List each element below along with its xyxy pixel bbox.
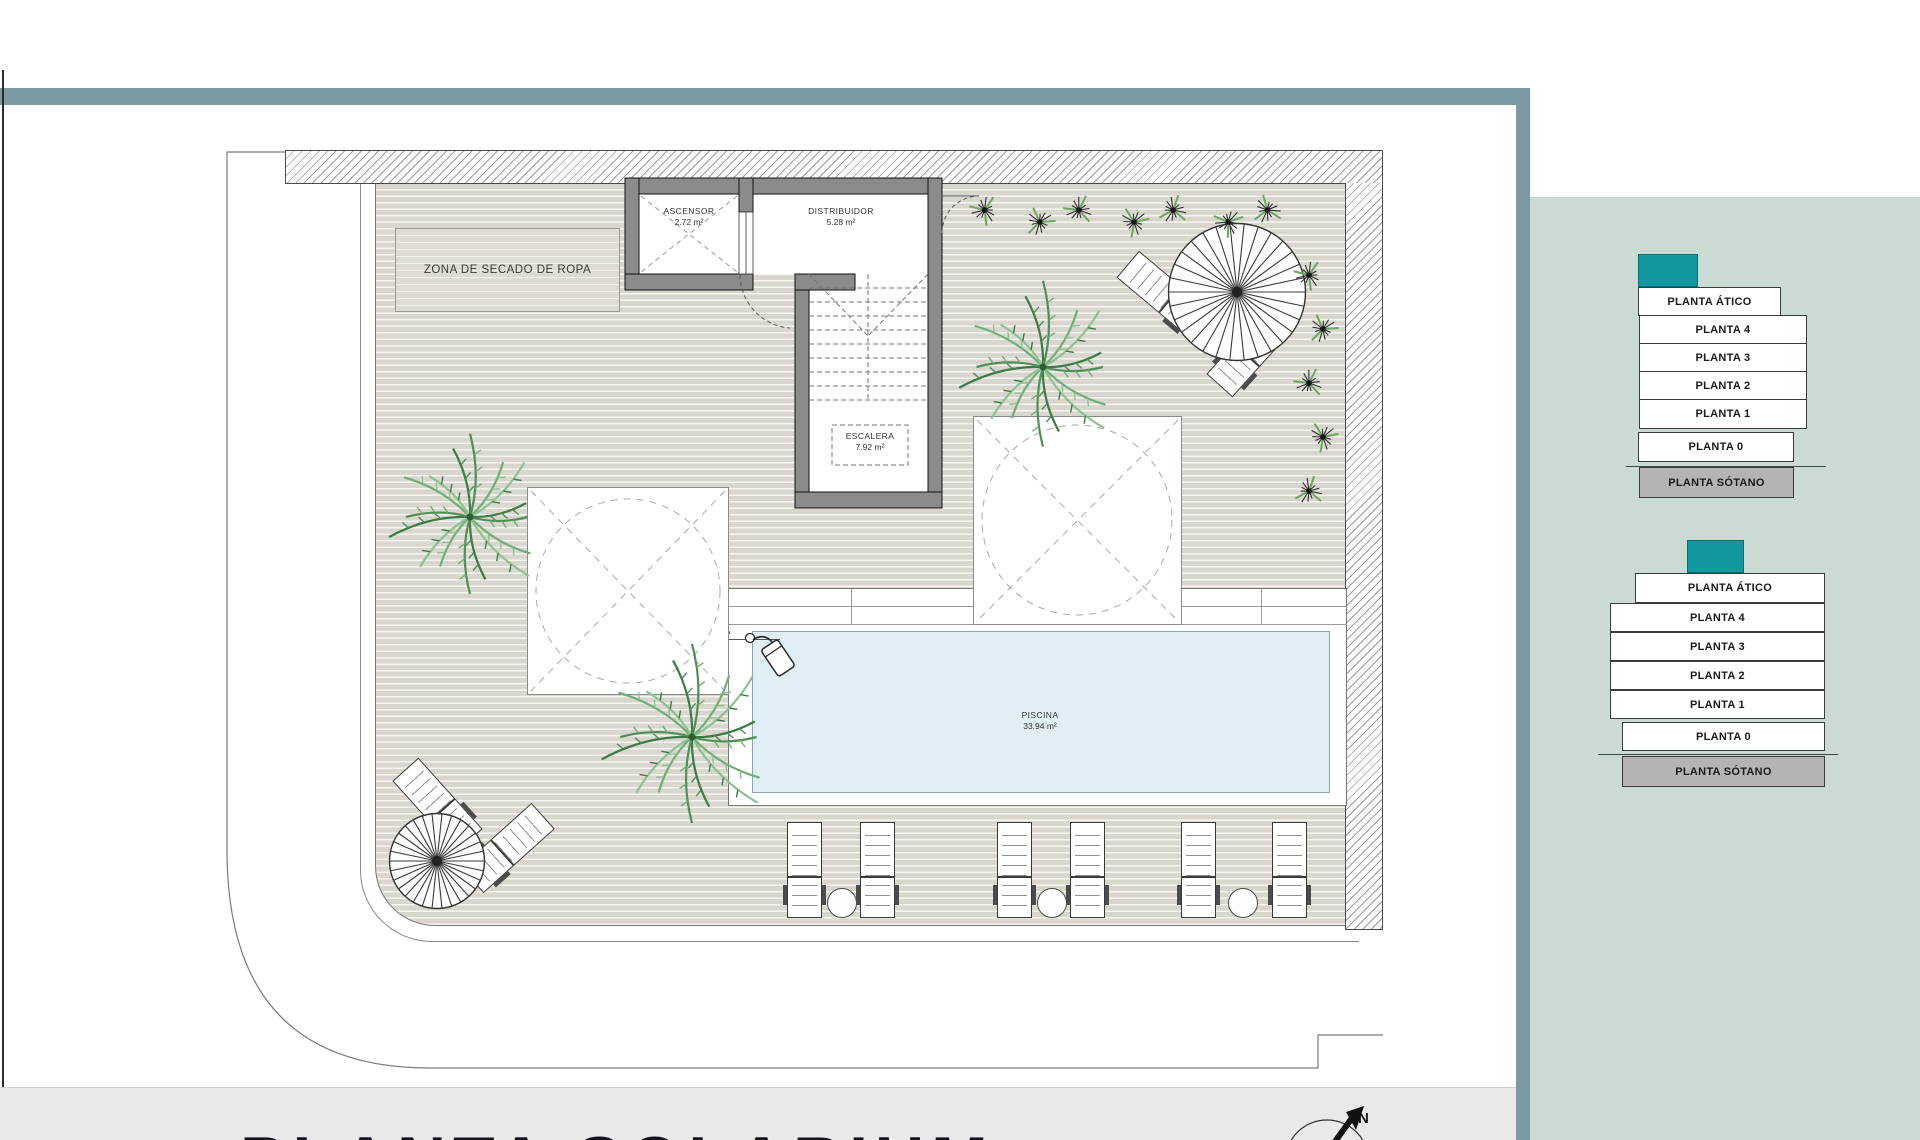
parasol-bottom-left (388, 812, 486, 910)
floor-row-planta0[interactable]: PLANTA 0 (1622, 722, 1825, 751)
shrub-row-right (1288, 248, 1344, 518)
ascensor-label: ASCENSOR 2.72 m² (631, 206, 747, 228)
palm-tree (385, 432, 555, 602)
palm-tree (955, 279, 1131, 455)
floor-row-planta2[interactable]: PLANTA 2 (1610, 661, 1825, 690)
floor-row-planta2[interactable]: PLANTA 2 (1639, 371, 1807, 400)
sun-lounger (997, 822, 1032, 918)
floor-row-planta4[interactable]: PLANTA 4 (1610, 603, 1825, 632)
shrub-row-top (965, 188, 1295, 244)
floor-row-sotano[interactable]: PLANTA SÓTANO (1622, 756, 1825, 787)
sun-lounger (1181, 822, 1216, 918)
sun-lounger (1272, 822, 1307, 918)
palm-tree (597, 642, 787, 832)
distribuidor-label: DISTRIBUIDOR 5.28 m² (776, 206, 906, 228)
round-side-table (1037, 888, 1067, 918)
drying-zone-label: ZONA DE SECADO DE ROPA (424, 264, 591, 276)
floor-row-planta1[interactable]: PLANTA 1 (1610, 690, 1825, 719)
drying-zone: ZONA DE SECADO DE ROPA (395, 228, 620, 312)
sheet-title: PLANTA SOLARIUM (240, 1122, 995, 1140)
current-floor-tab (1687, 540, 1744, 573)
pool-joint-tick (1261, 589, 1262, 625)
floor-row-atico[interactable]: PLANTA ÁTICO (1635, 573, 1825, 603)
floor-row-planta4[interactable]: PLANTA 4 (1639, 315, 1807, 344)
floor-row-planta3[interactable]: PLANTA 3 (1610, 632, 1825, 661)
round-side-table (1228, 888, 1258, 918)
floor-row-sotano[interactable]: PLANTA SÓTANO (1639, 467, 1794, 498)
pool-label: PISCINA 33.94 m² (975, 710, 1105, 732)
floor-row-atico[interactable]: PLANTA ÁTICO (1638, 287, 1781, 316)
north-arrow-icon (1280, 1100, 1420, 1140)
sun-lounger (1070, 822, 1105, 918)
floor-row-planta0[interactable]: PLANTA 0 (1638, 432, 1794, 462)
floorplan-page: ZONA DE SECADO DE ROPA PISCINA 33.94 m² … (0, 0, 1920, 1140)
pool-joint-tick (851, 589, 852, 625)
escalera-label: ESCALERA 7.92 m² (824, 431, 916, 453)
floor-row-planta3[interactable]: PLANTA 3 (1639, 343, 1807, 372)
floor-row-planta1[interactable]: PLANTA 1 (1639, 399, 1807, 429)
ground-line (1598, 754, 1838, 755)
sun-lounger (787, 822, 822, 918)
sun-lounger (860, 822, 895, 918)
round-side-table (827, 888, 857, 918)
current-floor-tab (1638, 254, 1698, 287)
north-label: N (1358, 1110, 1369, 1127)
